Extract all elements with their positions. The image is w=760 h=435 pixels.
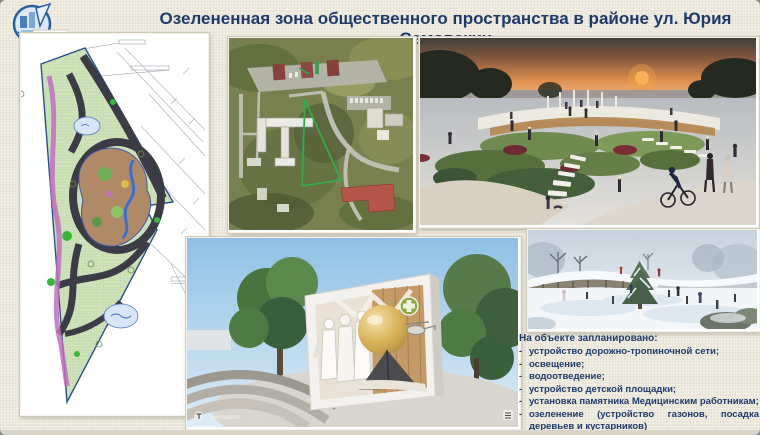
memorial-wall — [305, 274, 444, 410]
bullet-dash: - — [519, 359, 529, 372]
sunset-park-render — [419, 37, 759, 228]
svg-text:Community Edition: Community Edition — [244, 415, 286, 421]
planned-work-text: водоотведение; — [529, 371, 759, 384]
planned-work-text: устройство детской площадки; — [529, 384, 759, 397]
planned-work-item: - установка памятника Медицинским работн… — [519, 396, 759, 409]
planned-work-item: - водоотведение; — [519, 371, 759, 384]
bullet-dash: - — [519, 384, 529, 397]
golden-sphere — [358, 305, 408, 355]
bullet-dash: - — [519, 346, 529, 359]
planned-work-text: освещение; — [529, 359, 759, 372]
planned-work-item: - озеленение (устройство газонов, посадк… — [519, 409, 759, 434]
planned-work-item: - освещение; — [519, 359, 759, 372]
medical-cross-badge — [400, 297, 418, 315]
planned-work-text: озеленение (устройство газонов, посадка … — [529, 409, 759, 434]
monument-render: Twinmotion Community Edition — [186, 237, 521, 430]
bullet-dash: - — [519, 396, 529, 409]
bullet-dash: - — [519, 409, 529, 434]
planned-works-block: На объекте запланировано: - устройство д… — [519, 333, 759, 434]
planned-work-item: - устройство дорожно-тропиночной сети; — [519, 346, 759, 359]
sun — [635, 71, 649, 85]
winter-park-render — [527, 229, 760, 332]
planned-works-list: - устройство дорожно-тропиночной сети; -… — [519, 346, 759, 434]
planned-works-heading: На объекте запланировано: — [519, 333, 759, 344]
corner-badge-icon — [503, 410, 513, 420]
planned-work-text: устройство дорожно-тропиночной сети; — [529, 346, 759, 359]
aerial-photo — [228, 37, 416, 233]
planned-work-item: - устройство детской площадки; — [519, 384, 759, 397]
planned-work-text: установка памятника Медицинским работник… — [529, 396, 759, 409]
central-garden — [79, 148, 151, 246]
bullet-dash: - — [519, 371, 529, 384]
presentation-slide: ВОСТОЧНЫЙ АДМИНИСТРАТИВНЫЙ ОКРУГ Озелене… — [0, 0, 760, 435]
master-plan-image — [20, 33, 209, 416]
distant-building — [187, 330, 231, 350]
svg-text:Twinmotion: Twinmotion — [207, 414, 240, 421]
